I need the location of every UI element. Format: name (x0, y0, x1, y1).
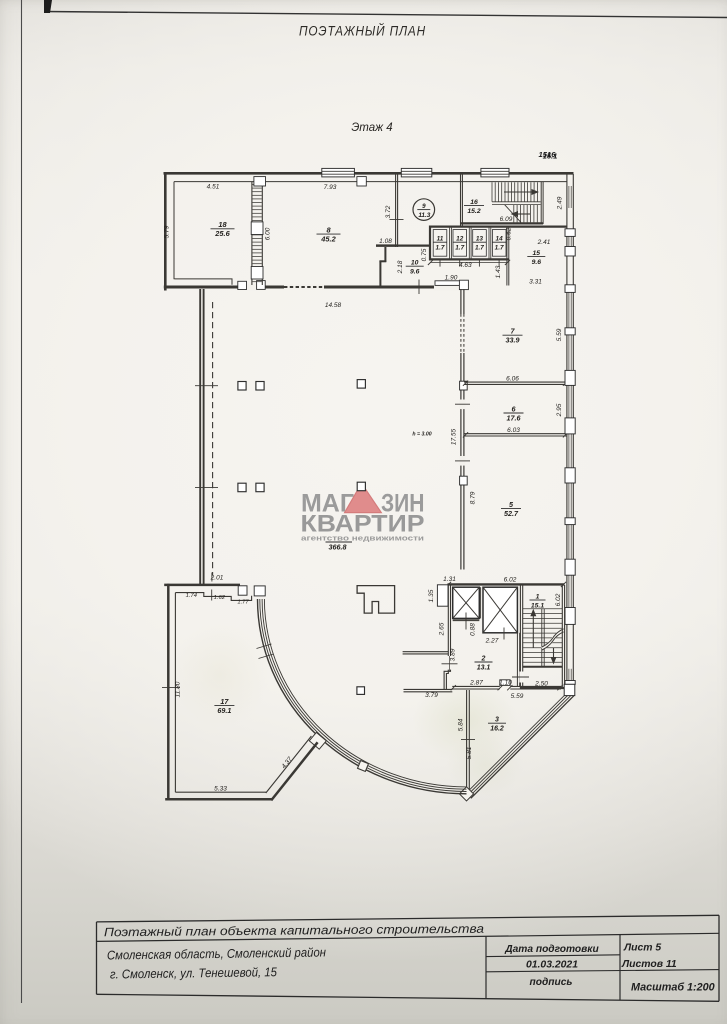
svg-text:01.03.2021: 01.03.2021 (526, 959, 578, 970)
svg-text:Масштаб 1:200: Масштаб 1:200 (631, 982, 715, 994)
svg-text:Смоленская область, Смоленский: Смоленская область, Смоленский район (107, 945, 326, 962)
svg-text:Лист 5: Лист 5 (623, 942, 661, 953)
svg-text:подпись: подпись (530, 977, 573, 988)
svg-text:Листов 11: Листов 11 (621, 959, 677, 970)
svg-text:Дата подготовки: Дата подготовки (504, 944, 599, 955)
svg-text:г. Смоленск, ул. Тенешевой, 15: г. Смоленск, ул. Тенешевой, 15 (110, 965, 278, 981)
